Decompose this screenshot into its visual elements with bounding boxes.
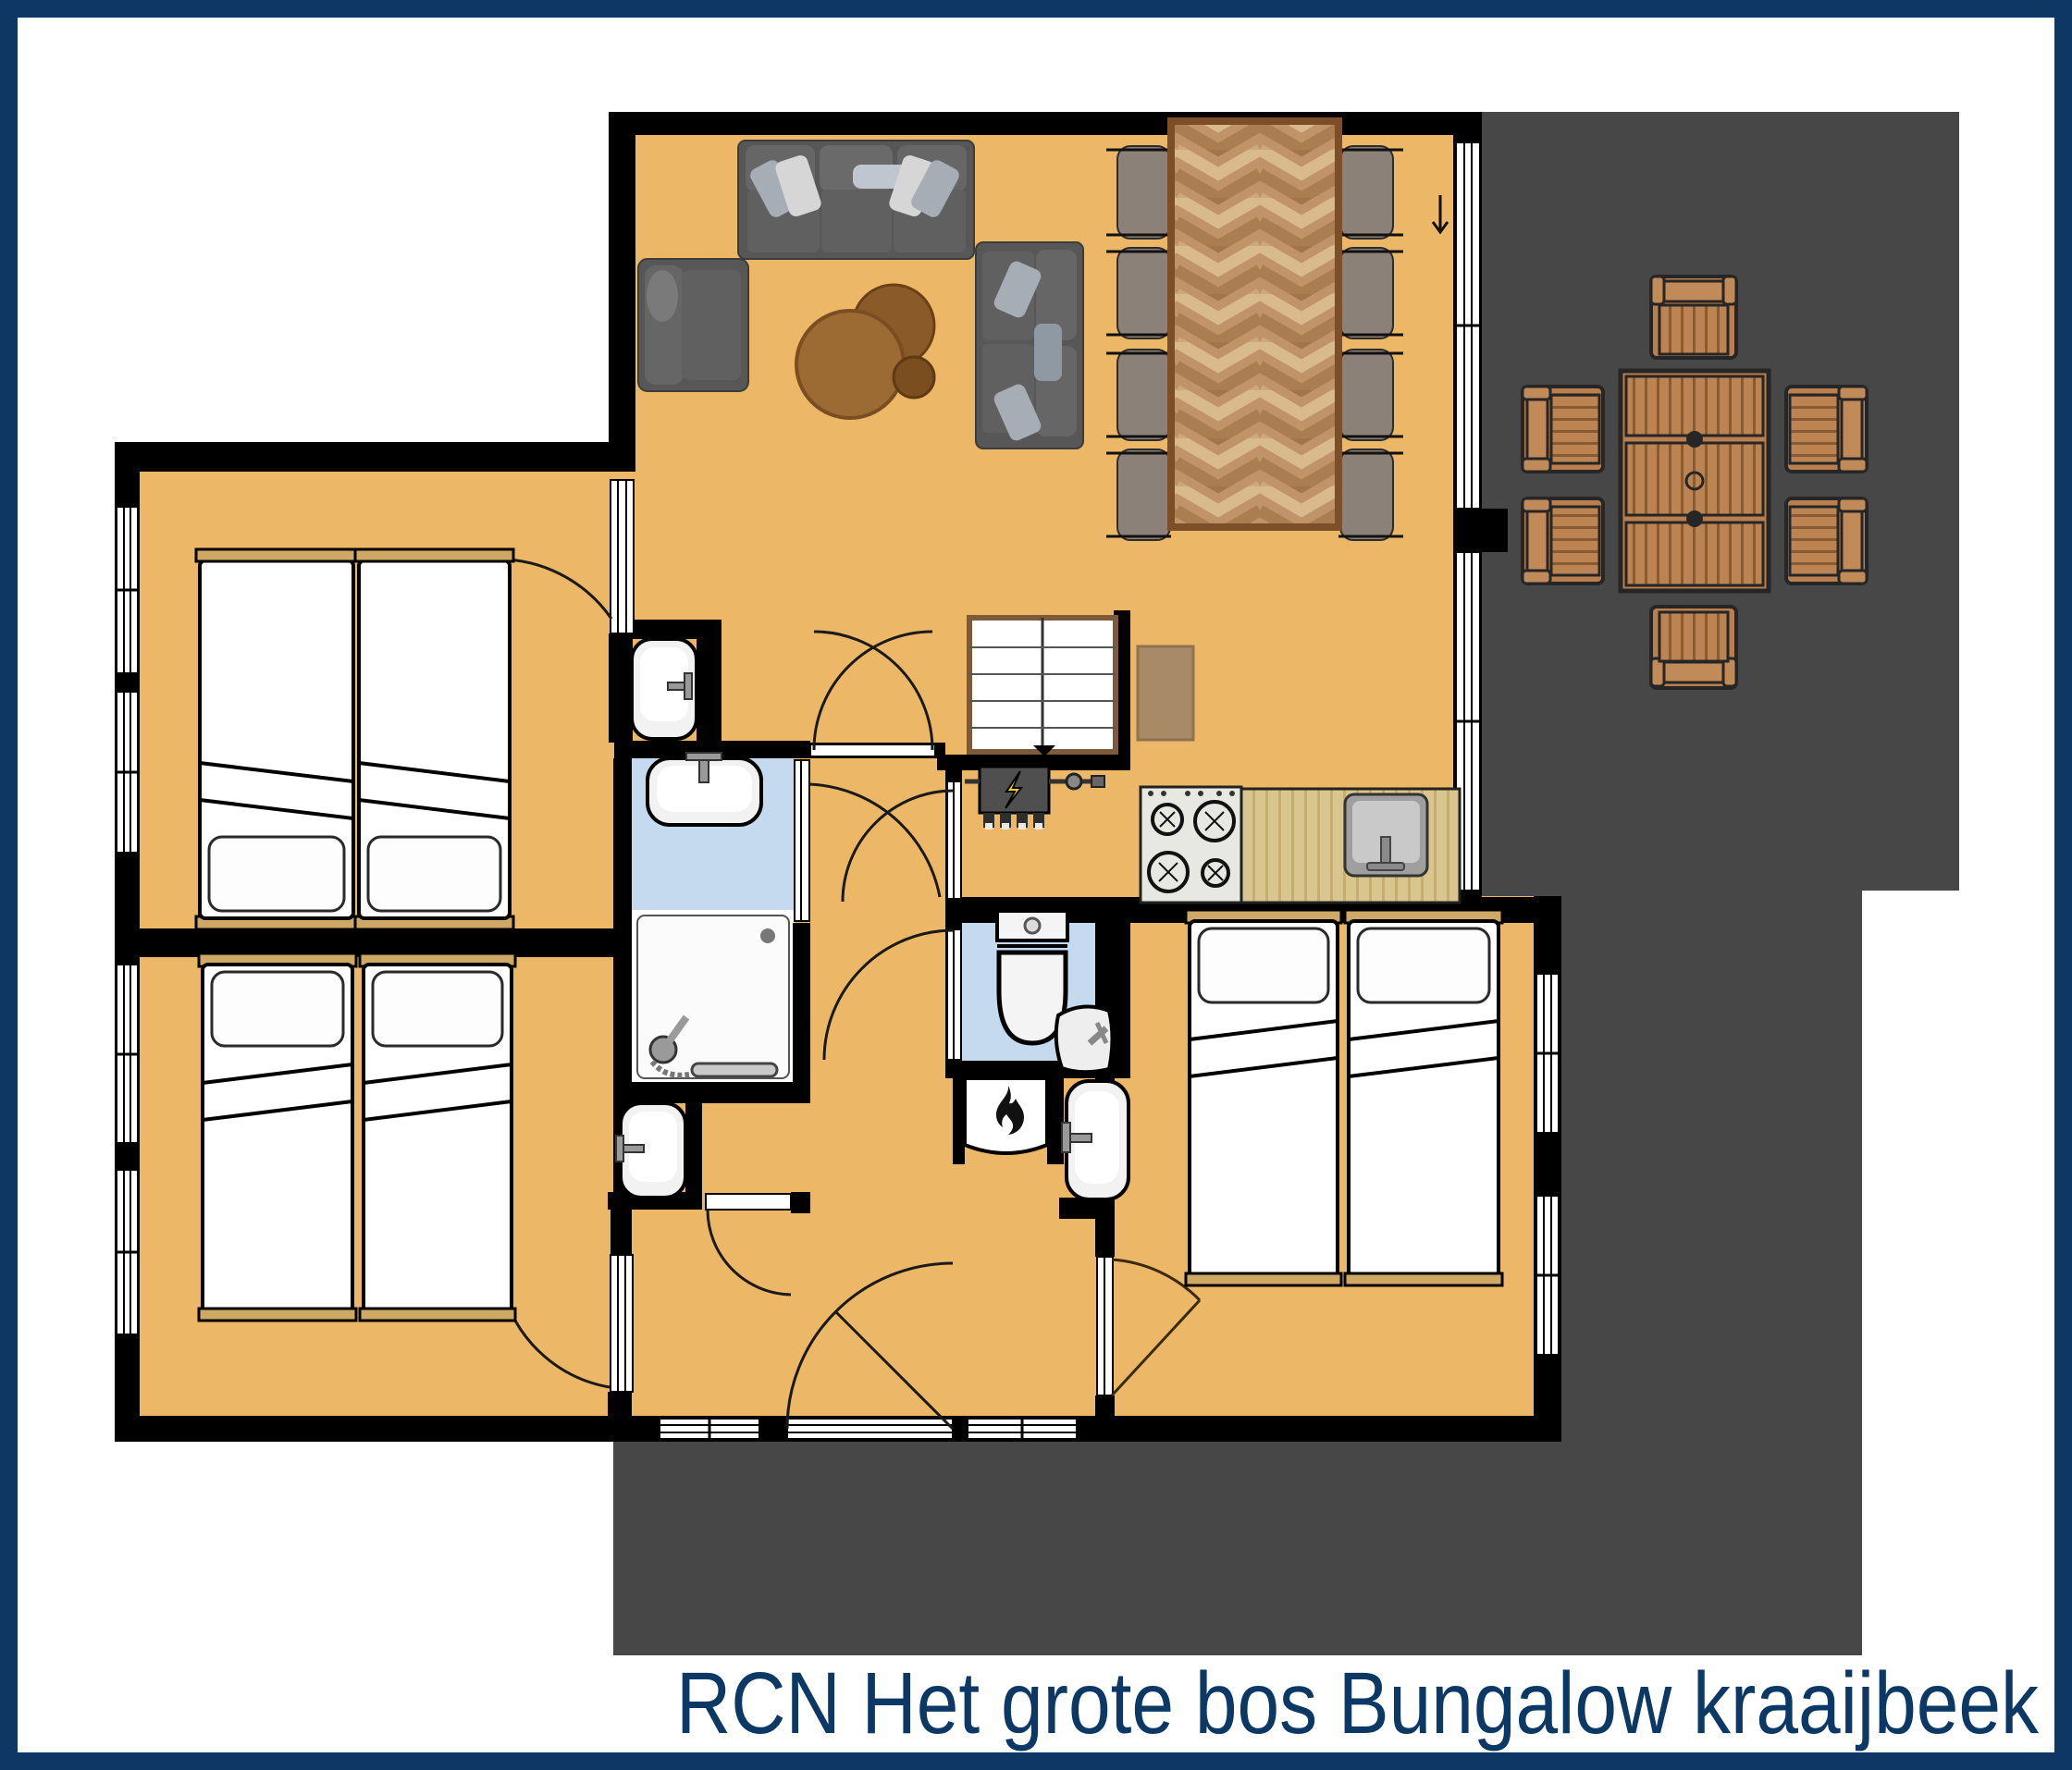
svg-text:RCN Het grote bos Bungalow kra: RCN Het grote bos Bungalow kraaijbeek <box>676 1654 2039 1752</box>
